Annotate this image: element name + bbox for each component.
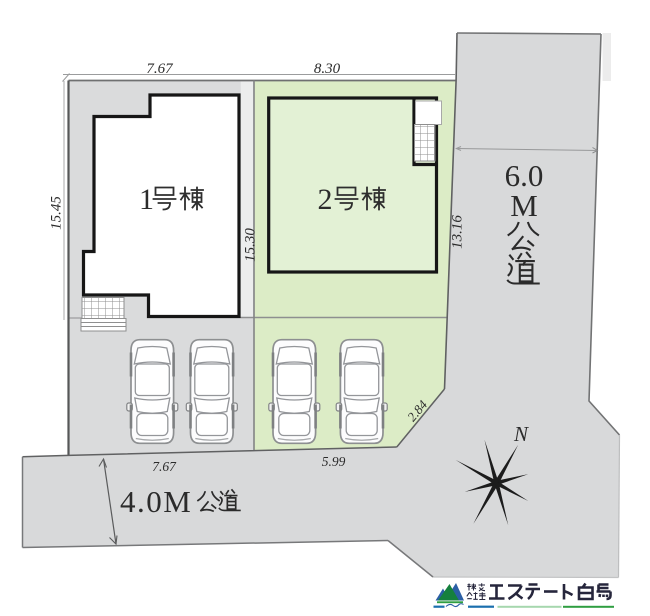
svg-text:13.16: 13.16 [450, 215, 466, 249]
svg-text:N: N [513, 422, 529, 446]
svg-text:15.45: 15.45 [49, 196, 65, 230]
svg-text:1: 1 [139, 183, 154, 216]
svg-text:5.99: 5.99 [322, 454, 346, 469]
svg-text:M: M [510, 188, 538, 223]
svg-text:4.0M: 4.0M [120, 484, 192, 519]
svg-text:15.30: 15.30 [243, 228, 259, 262]
svg-text:2: 2 [318, 183, 333, 216]
svg-text:7.67: 7.67 [152, 459, 177, 474]
svg-text:8.30: 8.30 [314, 61, 341, 77]
svg-text:7.67: 7.67 [146, 61, 174, 77]
